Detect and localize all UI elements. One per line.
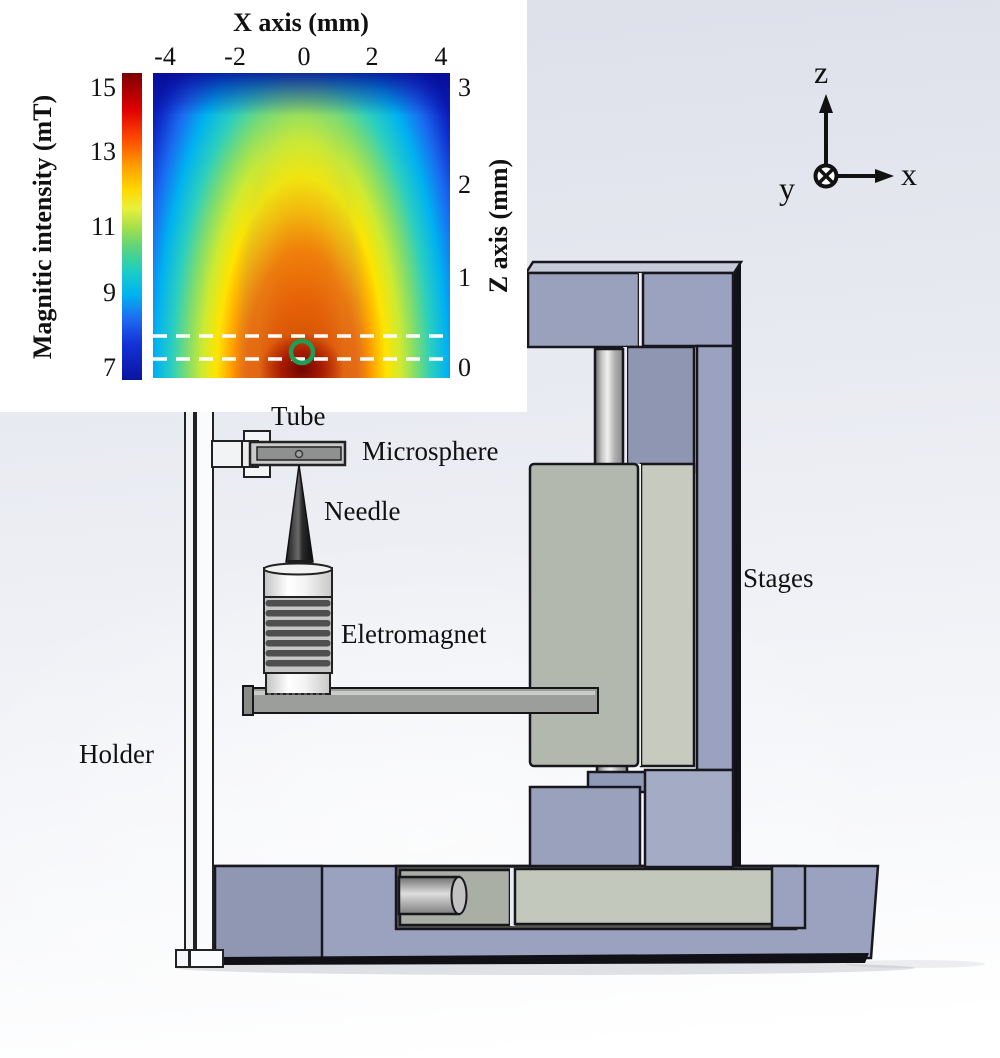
axis-letter-y: y [779,172,795,204]
heatmap-inset-panel: X axis (mm) -4 -2 0 2 4 Magnitic intensi… [0,0,527,412]
z-carriage [530,464,694,766]
label-holder: Holder [79,740,154,768]
z-tick: 2 [458,172,471,198]
x-tick: 4 [435,44,448,70]
heatmap-overlay [153,73,450,378]
axis-letter-x: x [901,158,917,190]
colorbar-tick: 11 [54,214,116,240]
x-tick: -2 [224,44,246,70]
needle-cone [286,465,313,569]
colorbar-tick: 15 [54,75,116,101]
z-tick: 1 [458,265,471,291]
z-tick: 3 [458,75,471,101]
colorbar-tick: 7 [54,355,116,381]
label-microsphere: Microsphere [362,437,498,465]
x-tick: 2 [366,44,379,70]
colorbar [122,73,142,380]
colorbar-tick: 9 [54,280,116,306]
x-tick: 0 [298,44,311,70]
label-stages: Stages [743,564,814,592]
z-arrowhead [819,94,833,113]
x-tick: -4 [154,44,176,70]
x-arrowhead [875,169,894,183]
axis-letter-z: z [814,56,828,88]
axes-triad [816,94,895,187]
z-tick: 0 [458,355,471,381]
z-axis-title: Z axis (mm) [484,116,516,336]
tube-assembly [250,442,345,465]
colorbar-tick: 13 [54,139,116,165]
figure: X axis (mm) -4 -2 0 2 4 Magnitic intensi… [0,0,1000,1058]
electromagnet-body [264,564,332,695]
label-needle: Needle [324,497,400,525]
x-axis-title: X axis (mm) [171,8,431,38]
microsphere-dot [296,451,303,458]
label-electromagnet: Eletromagnet [341,620,486,648]
heatmap-plot [153,73,450,378]
x-linear-stage [396,866,805,929]
label-tube: Tube [271,402,326,430]
